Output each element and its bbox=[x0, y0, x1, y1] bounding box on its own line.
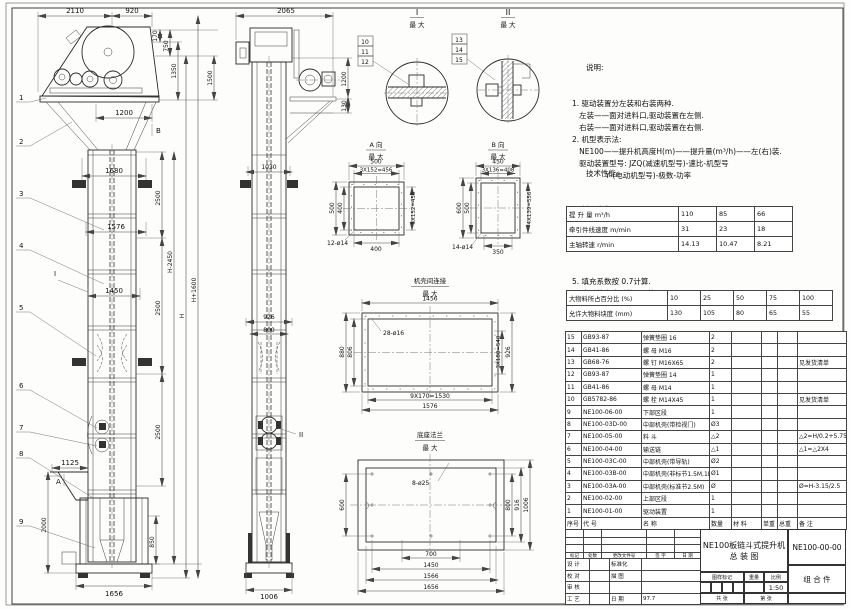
table-cell: 提 升 量 m³/h bbox=[567, 207, 679, 222]
table-cell bbox=[798, 332, 847, 344]
table-cell: 标准化 bbox=[610, 559, 642, 571]
table-row: 设 计标准化 bbox=[566, 559, 701, 571]
table-cell bbox=[778, 455, 798, 467]
table-cell bbox=[732, 468, 762, 480]
table-row: 9NE100-06-00下部区段1 bbox=[566, 406, 847, 418]
table-cell bbox=[778, 393, 798, 405]
dim-label: 1566 bbox=[423, 573, 438, 580]
table-cell: 数量 bbox=[710, 517, 732, 529]
dim-label: 1006 bbox=[523, 497, 530, 512]
table-cell: NE100-02-00 bbox=[582, 493, 642, 505]
table-cell: 大物料所占百分比 (%) bbox=[567, 291, 668, 306]
table-row: 主轴转速 r/min14.1310.478.21 bbox=[567, 237, 793, 252]
table-cell bbox=[798, 493, 847, 505]
table-cell bbox=[798, 369, 847, 381]
table-cell bbox=[610, 582, 642, 594]
table-row: 3NE100-03A-00中部机壳(标准节2.5M)ØØ=H-3.15/2.5 bbox=[566, 480, 847, 492]
table-cell bbox=[778, 381, 798, 393]
signature-table: 设 计标准化校 对描 图审 核工 艺日 期97.7 bbox=[565, 558, 701, 605]
side-view: 2065 1200 130 1030 926 800 1006 II bbox=[236, 7, 352, 601]
sheet-number: 第 张 bbox=[744, 593, 788, 604]
dim-label: 1006 bbox=[260, 593, 278, 601]
dim-label: 130 bbox=[341, 100, 348, 112]
detail-b: B 向 最 大 450 3X136=408 600 500 4X139=556 … bbox=[452, 140, 533, 256]
table-cell: 1 bbox=[710, 393, 732, 405]
table-cell: △1=△2X4 bbox=[798, 443, 847, 455]
table-cell: 15 bbox=[566, 332, 582, 344]
table-row: 12GB93-87弹簧垫圈 141 bbox=[566, 369, 847, 381]
table-cell: 2 bbox=[710, 332, 732, 344]
table-cell: 105 bbox=[701, 306, 734, 321]
table-cell: △2=H/0.2+5.75 bbox=[798, 431, 847, 443]
title-block-empty-cell bbox=[788, 593, 846, 604]
table-cell bbox=[778, 406, 798, 418]
notes-heading: 说明: bbox=[572, 62, 847, 74]
dim-label: H+1600 bbox=[191, 277, 198, 302]
detail-b-title: B 向 bbox=[491, 140, 504, 149]
table-row: 提 升 量 m³/h1108566 bbox=[567, 207, 793, 222]
table-cell: 中部机壳(带导轨) bbox=[642, 455, 710, 467]
balloon-12: 12 bbox=[361, 59, 369, 66]
table-cell bbox=[675, 530, 701, 538]
table-cell: 1 bbox=[566, 505, 582, 517]
table-cell bbox=[778, 480, 798, 492]
table-cell bbox=[762, 369, 778, 381]
table-cell bbox=[778, 468, 798, 480]
table-cell bbox=[590, 582, 610, 594]
table-cell: Ø1 bbox=[710, 468, 732, 480]
detail-ii-title: II bbox=[506, 8, 511, 17]
table-cell: 55 bbox=[800, 306, 833, 321]
table-cell: 审 核 bbox=[566, 582, 590, 594]
table-cell: 描 图 bbox=[610, 570, 642, 582]
table-cell: 螺 母 M16 bbox=[642, 344, 710, 356]
table-cell bbox=[798, 344, 847, 356]
table-cell bbox=[778, 505, 798, 517]
dim-label: 700 bbox=[425, 551, 437, 558]
detail-d-subtitle: 最 大 bbox=[422, 443, 438, 452]
dim-label: 1030 bbox=[261, 164, 276, 171]
balloon-14: 14 bbox=[455, 47, 463, 54]
table-cell: 130 bbox=[668, 306, 701, 321]
detail-c-title: 机壳间连接 bbox=[414, 276, 447, 285]
mark-box bbox=[733, 582, 744, 593]
balloon-3: 3 bbox=[19, 190, 23, 198]
table-cell bbox=[732, 443, 762, 455]
table-cell bbox=[798, 381, 847, 393]
balloon-5: 5 bbox=[19, 304, 23, 312]
table-cell bbox=[642, 570, 701, 582]
table-cell bbox=[732, 455, 762, 467]
detail-casing-joint: 机壳间连接 最 大 1456 880 806 28-ø16 3X180=540 … bbox=[339, 276, 516, 414]
table-cell: GB41-86 bbox=[582, 381, 642, 393]
detail-ii: 13 14 15 II 最 大 bbox=[452, 8, 539, 125]
table-row: 15GB93-87弹簧垫圈 162 bbox=[566, 332, 847, 344]
table-cell: 下部区段 bbox=[642, 406, 710, 418]
table-cell: NE100-06-00 bbox=[582, 406, 642, 418]
dim-label: 800 bbox=[263, 327, 275, 334]
table-row: 审 核 bbox=[566, 582, 701, 594]
table-cell bbox=[732, 493, 762, 505]
balloon-6: 6 bbox=[19, 382, 24, 390]
table-cell: GB93-87 bbox=[582, 332, 642, 344]
table-cell bbox=[732, 369, 762, 381]
table-cell: 见发货清单 bbox=[798, 356, 847, 368]
dim-label: 1200 bbox=[341, 71, 348, 86]
table-cell bbox=[778, 332, 798, 344]
dim-label: 2110 bbox=[66, 7, 84, 15]
dim-label: 916 bbox=[514, 499, 521, 511]
table-cell bbox=[584, 545, 602, 553]
table-cell: 序号 bbox=[566, 517, 582, 529]
table-cell: 100 bbox=[800, 291, 833, 306]
table-cell: 4 bbox=[566, 468, 582, 480]
table-cell bbox=[762, 406, 778, 418]
table-cell bbox=[732, 356, 762, 368]
table-cell: 1 bbox=[710, 493, 732, 505]
table-cell bbox=[732, 418, 762, 430]
table-row: 序号代 号名 称数量材 料单重总重备 注 bbox=[566, 517, 847, 529]
balloon-15: 15 bbox=[455, 57, 463, 64]
note-line: 右装——面对进料口,驱动装置在右侧. bbox=[572, 122, 847, 134]
note-line: 左装——面对进料口,驱动装置在左侧. bbox=[572, 110, 847, 122]
dim-label: 400 bbox=[370, 246, 382, 253]
table-cell: Ø2 bbox=[710, 455, 732, 467]
table-cell: 名 称 bbox=[642, 517, 710, 529]
table-cell bbox=[590, 593, 610, 605]
dim-label: 9X170=1530 bbox=[410, 393, 450, 400]
table-row: 4NE100-03B-00中部机壳(非标节1.5M,1M)Ø1 bbox=[566, 468, 847, 480]
table-cell: GB41-86 bbox=[582, 344, 642, 356]
detail-i: 10 11 12 I 最 大 bbox=[358, 8, 450, 128]
table-cell: 料 斗 bbox=[642, 431, 710, 443]
dim-label: 2500 bbox=[155, 424, 162, 439]
table-cell bbox=[642, 582, 701, 594]
dim-label: 3X136=408 bbox=[482, 168, 515, 174]
table-cell: 工 艺 bbox=[566, 593, 590, 605]
table-cell: 中部机壳(非标节1.5M,1M) bbox=[642, 468, 710, 480]
table-cell: Ø=H-3.15/2.5 bbox=[798, 480, 847, 492]
table-cell: NE100-03D-00 bbox=[582, 418, 642, 430]
table-cell bbox=[762, 443, 778, 455]
dim-label: 880 bbox=[339, 346, 346, 358]
table-cell: 1 bbox=[710, 406, 732, 418]
section-mark-a: A bbox=[56, 478, 61, 486]
table-cell bbox=[566, 530, 584, 538]
table-cell: 13 bbox=[566, 356, 582, 368]
table-cell: 2 bbox=[710, 344, 732, 356]
dim-label: 500 bbox=[370, 159, 382, 166]
table-row: 1NE100-01-00驱动装置1 bbox=[566, 505, 847, 517]
dim-label: 806 bbox=[347, 346, 354, 358]
table-cell bbox=[798, 418, 847, 430]
table-cell: 1 bbox=[710, 369, 732, 381]
table-cell bbox=[732, 480, 762, 492]
table-cell: 7 bbox=[566, 431, 582, 443]
table-cell: GB93-87 bbox=[582, 369, 642, 381]
dim-label: 500 bbox=[464, 202, 471, 214]
table-cell bbox=[762, 468, 778, 480]
dim-label: 1576 bbox=[107, 223, 125, 231]
table-row: 14GB41-86螺 母 M162 bbox=[566, 344, 847, 356]
table-cell: 8 bbox=[566, 418, 582, 430]
drawing-title: NE100板链斗式提升机 总 装 图 bbox=[700, 529, 788, 572]
dim-label: H-2450 bbox=[167, 251, 174, 273]
table-cell: 主轴转速 r/min bbox=[567, 237, 679, 252]
detail-base-flange: 底座法兰 最 大 600 8-ø25 800 916 1006 700 1450… bbox=[339, 430, 534, 595]
scale-label: 比例 bbox=[764, 572, 788, 582]
table-cell: 1 bbox=[710, 505, 732, 517]
table-cell: 中部机壳(标准节2.5M) bbox=[642, 480, 710, 492]
table-cell: 12 bbox=[566, 369, 582, 381]
table-cell bbox=[762, 431, 778, 443]
table-cell: 材 料 bbox=[732, 517, 762, 529]
dim-label: 3X152=456 bbox=[360, 168, 393, 174]
table-cell bbox=[732, 505, 762, 517]
table-cell: 备 注 bbox=[798, 517, 847, 529]
section-mark-ii: II bbox=[299, 431, 303, 439]
table-cell: 3 bbox=[566, 480, 582, 492]
table-cell: 单重 bbox=[762, 517, 778, 529]
table-cell bbox=[762, 455, 778, 467]
table-cell bbox=[732, 393, 762, 405]
dim-label: 2000 bbox=[41, 517, 48, 532]
table-cell: 14 bbox=[566, 344, 582, 356]
table-row: 5NE100-03C-00中部机壳(带导轨)Ø2 bbox=[566, 455, 847, 467]
table-cell: 31 bbox=[679, 222, 717, 237]
balloon-13: 13 bbox=[455, 37, 463, 44]
table-cell: 2 bbox=[710, 356, 732, 368]
table-cell: 97.7 bbox=[642, 593, 701, 605]
hole-callout: 12-ø14 bbox=[327, 240, 348, 247]
table-cell bbox=[584, 537, 602, 545]
table-cell: 螺 钉 M16X65 bbox=[642, 356, 710, 368]
table-cell: Ø bbox=[710, 480, 732, 492]
table-cell bbox=[762, 493, 778, 505]
table-cell bbox=[798, 455, 847, 467]
table-cell bbox=[762, 418, 778, 430]
hole-callout: 28-ø16 bbox=[383, 330, 404, 337]
table-row: 13GB68-76螺 钉 M16X652见发货清单 bbox=[566, 356, 847, 368]
dim-label: 926 bbox=[263, 314, 275, 321]
assembly-type: 组 合 件 bbox=[788, 565, 846, 593]
detail-d-title: 底座法兰 bbox=[417, 430, 444, 439]
table-cell: 11 bbox=[566, 381, 582, 393]
table-cell: 牵引件线速度 m/min bbox=[567, 222, 679, 237]
table-cell bbox=[566, 545, 584, 553]
table-cell: NE100-03C-00 bbox=[582, 455, 642, 467]
dim-label: 850 bbox=[149, 536, 156, 548]
dim-label: 1456 bbox=[422, 296, 437, 303]
table-cell: 5 bbox=[566, 455, 582, 467]
table-cell: 85 bbox=[717, 207, 755, 222]
dim-label: 1450 bbox=[423, 562, 438, 569]
table-cell: GB68-76 bbox=[582, 356, 642, 368]
table-cell bbox=[602, 545, 647, 553]
table-cell bbox=[732, 431, 762, 443]
table-cell bbox=[732, 381, 762, 393]
dim-label: 1576 bbox=[422, 403, 437, 410]
parts-list: 15GB93-87弹簧垫圈 16214GB41-86螺 母 M16213GB68… bbox=[565, 331, 847, 530]
table-cell: NE100-03B-00 bbox=[582, 468, 642, 480]
table-cell: 75 bbox=[767, 291, 800, 306]
dim-label: 350 bbox=[492, 249, 504, 256]
balloon-4: 4 bbox=[19, 242, 24, 250]
table-cell bbox=[762, 356, 778, 368]
dim-label: 2500 bbox=[155, 300, 162, 315]
table-cell bbox=[732, 332, 762, 344]
weight-value bbox=[744, 582, 764, 593]
dim-label: 3X152=456 bbox=[411, 191, 417, 224]
dim-label: 2065 bbox=[277, 7, 295, 15]
table-cell: 驱动装置 bbox=[642, 505, 710, 517]
dim-label: 600 bbox=[456, 202, 463, 214]
revision-table: 标记处数更改文件号签 字日 期 bbox=[565, 529, 701, 560]
detail-i-title: I bbox=[416, 8, 418, 17]
table-cell bbox=[642, 559, 701, 571]
table-cell: 见发货清单 bbox=[798, 393, 847, 405]
table-cell: NE100-05-00 bbox=[582, 431, 642, 443]
table-cell bbox=[778, 443, 798, 455]
table-cell bbox=[675, 545, 701, 553]
table-cell bbox=[647, 537, 675, 545]
table-row bbox=[566, 530, 701, 538]
table-cell: 弹簧垫圈 14 bbox=[642, 369, 710, 381]
table-cell: 螺 母 M14 bbox=[642, 381, 710, 393]
table-row: 11GB41-86螺 母 M141 bbox=[566, 381, 847, 393]
mark-box bbox=[700, 582, 711, 593]
table-cell bbox=[778, 369, 798, 381]
title-block: 标记处数更改文件号签 字日 期 设 计标准化校 对描 图审 核工 艺日 期97.… bbox=[565, 529, 846, 604]
table-cell: 50 bbox=[734, 291, 767, 306]
table-cell: 14.13 bbox=[679, 237, 717, 252]
section-mark-b: B bbox=[156, 127, 161, 135]
table-cell: NE100-03A-00 bbox=[582, 480, 642, 492]
table-cell: 设 计 bbox=[566, 559, 590, 571]
table-cell: GB5782-86 bbox=[582, 393, 642, 405]
mark-box bbox=[711, 582, 722, 593]
table-cell: 25 bbox=[701, 291, 734, 306]
table-cell bbox=[732, 344, 762, 356]
drawing-title-line1: NE100板链斗式提升机 bbox=[703, 540, 785, 551]
table-cell bbox=[762, 332, 778, 344]
table-row bbox=[566, 537, 701, 545]
table-row: 工 艺日 期97.7 bbox=[566, 593, 701, 605]
table-cell: Ø3 bbox=[710, 418, 732, 430]
table-cell: 10.47 bbox=[717, 237, 755, 252]
table-cell bbox=[778, 356, 798, 368]
mark-label: 图样标记 bbox=[700, 572, 744, 582]
table-cell bbox=[762, 480, 778, 492]
dim-label: 400 bbox=[337, 202, 344, 214]
detail-a-title: A 向 bbox=[369, 140, 382, 149]
table-cell bbox=[798, 468, 847, 480]
table-cell bbox=[590, 559, 610, 571]
table-cell bbox=[762, 381, 778, 393]
table-cell: 65 bbox=[767, 306, 800, 321]
balloon-9: 9 bbox=[19, 518, 23, 526]
mark-box bbox=[722, 582, 733, 593]
table-cell: 代 号 bbox=[582, 517, 642, 529]
detail-ii-subtitle: 最 大 bbox=[500, 20, 516, 29]
dim-label: 600 bbox=[339, 499, 346, 511]
table-row: 7NE100-05-00料 斗△2△2=H/0.2+5.75 bbox=[566, 431, 847, 443]
table-cell bbox=[675, 537, 701, 545]
table-cell: △1 bbox=[710, 443, 732, 455]
table-cell bbox=[798, 505, 847, 517]
table-cell: 23 bbox=[717, 222, 755, 237]
weight-label: 重量 bbox=[744, 572, 764, 582]
dim-label: 1656 bbox=[105, 590, 123, 598]
dim-label: 1500 bbox=[207, 70, 214, 85]
dim-label: 1680 bbox=[105, 167, 123, 175]
table-cell bbox=[762, 344, 778, 356]
drawing-number: NE100-00-00 bbox=[788, 529, 846, 565]
dim-label: 450 bbox=[492, 159, 504, 166]
table-cell bbox=[590, 570, 610, 582]
table-cell: NE100-01-00 bbox=[582, 505, 642, 517]
table-cell bbox=[647, 545, 675, 553]
hole-callout: 8-ø25 bbox=[412, 480, 429, 487]
balloon-7: 7 bbox=[19, 424, 23, 432]
scale-value: 1:50 bbox=[764, 582, 788, 593]
dim-label: 1125 bbox=[61, 459, 79, 467]
table-cell: 9 bbox=[566, 406, 582, 418]
balloon-8: 8 bbox=[19, 450, 23, 458]
table-cell: 10 bbox=[566, 393, 582, 405]
table-cell: 中部机壳(带检视门) bbox=[642, 418, 710, 430]
drawing-title-line2: 总 装 图 bbox=[729, 551, 758, 562]
note-line: 5. 填充系数按 0.7计算. bbox=[572, 276, 847, 288]
table-row: 大物料所占百分比 (%)10255075100 bbox=[567, 291, 833, 306]
table-cell: 66 bbox=[755, 207, 793, 222]
table-cell: △2 bbox=[710, 431, 732, 443]
table-cell: 10 bbox=[668, 291, 701, 306]
detail-i-subtitle: 最 大 bbox=[409, 20, 425, 29]
table-cell bbox=[732, 406, 762, 418]
hole-callout: 14-ø14 bbox=[452, 244, 473, 251]
table-cell: 上部区段 bbox=[642, 493, 710, 505]
dim-label: 1200 bbox=[115, 109, 133, 117]
dim-label: 926 bbox=[505, 346, 512, 358]
table-row: 允许大物料块度 (mm)130105806555 bbox=[567, 306, 833, 321]
table-cell: 8.21 bbox=[755, 237, 793, 252]
lump-size-table: 大物料所占百分比 (%)10255075100允许大物料块度 (mm)13010… bbox=[566, 290, 833, 321]
detail-a: A 向 最 大 500 3X152=456 500 400 3X152=456 … bbox=[327, 140, 417, 253]
table-row: 校 对描 图 bbox=[566, 570, 701, 582]
table-cell bbox=[762, 393, 778, 405]
dim-label: 170 bbox=[152, 30, 159, 42]
table-row: 2NE100-02-00上部区段1 bbox=[566, 493, 847, 505]
table-cell: 日 期 bbox=[610, 593, 642, 605]
dim-label: 500 bbox=[329, 202, 336, 214]
balloon-10: 10 bbox=[361, 39, 369, 46]
dim-label: 800 bbox=[505, 499, 512, 511]
section-mark-i: I bbox=[54, 270, 56, 278]
table-cell bbox=[584, 530, 602, 538]
dim-label: 1350 bbox=[171, 63, 178, 78]
table-cell bbox=[778, 344, 798, 356]
table-cell: 110 bbox=[679, 207, 717, 222]
table-cell bbox=[778, 431, 798, 443]
table-cell: 2 bbox=[566, 493, 582, 505]
dim-label: H bbox=[179, 314, 186, 319]
balloon-1: 1 bbox=[19, 94, 23, 102]
table-cell: 6 bbox=[566, 443, 582, 455]
table-cell bbox=[566, 537, 584, 545]
table-cell: NE100-04-00 bbox=[582, 443, 642, 455]
front-view: 2110 920 170 750 1350 1500 1200 B 1680 2… bbox=[16, 7, 218, 598]
